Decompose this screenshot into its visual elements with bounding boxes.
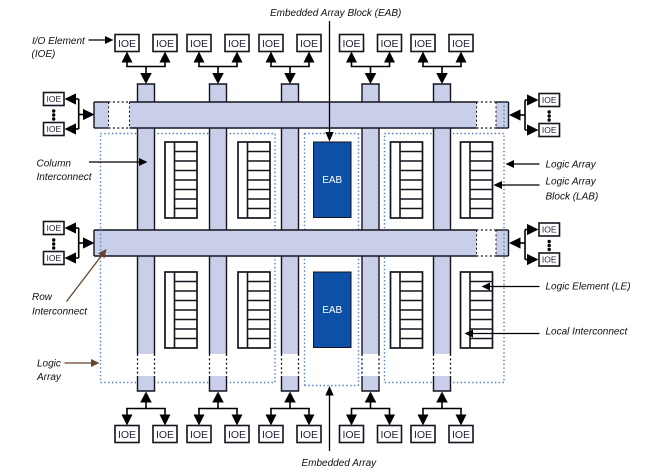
- svg-text:IOE: IOE: [452, 38, 470, 50]
- svg-text:IOE: IOE: [300, 429, 318, 441]
- svg-text:Local Interconnect: Local Interconnect: [546, 327, 629, 338]
- svg-text:IOE: IOE: [542, 225, 557, 235]
- svg-text:Interconnect: Interconnect: [32, 307, 88, 318]
- svg-text:IOE: IOE: [542, 95, 557, 105]
- svg-text:IOE: IOE: [118, 38, 136, 50]
- svg-text:Embedded Array: Embedded Array: [302, 458, 378, 469]
- svg-text:IOE: IOE: [46, 253, 61, 263]
- svg-text:IOE: IOE: [262, 38, 280, 50]
- svg-text:IOE: IOE: [46, 94, 61, 104]
- svg-text:Block (LAB): Block (LAB): [546, 192, 599, 203]
- svg-text:Logic Array: Logic Array: [546, 177, 597, 188]
- svg-text:IOE: IOE: [380, 429, 398, 441]
- svg-text:IOE: IOE: [46, 124, 61, 134]
- svg-text:IOE: IOE: [542, 255, 557, 265]
- svg-text:EAB: EAB: [322, 175, 342, 186]
- svg-text:IOE: IOE: [262, 429, 280, 441]
- svg-text:(IOE): (IOE): [32, 49, 56, 60]
- svg-text:IOE: IOE: [414, 38, 432, 50]
- svg-text:Array: Array: [36, 372, 62, 383]
- svg-text:Logic: Logic: [37, 359, 61, 370]
- svg-text:Logic Array: Logic Array: [546, 160, 597, 171]
- svg-text:Interconnect: Interconnect: [37, 172, 93, 183]
- svg-text:IOE: IOE: [156, 429, 174, 441]
- svg-text:IOE: IOE: [118, 429, 136, 441]
- svg-text:EAB: EAB: [322, 305, 342, 316]
- svg-text:IOE: IOE: [46, 223, 61, 233]
- svg-text:IOE: IOE: [300, 38, 318, 50]
- svg-text:IOE: IOE: [228, 38, 246, 50]
- svg-text:IOE: IOE: [542, 125, 557, 135]
- svg-text:I/O Element: I/O Element: [32, 36, 86, 47]
- svg-text:IOE: IOE: [342, 429, 360, 441]
- svg-text:Column: Column: [37, 159, 72, 170]
- svg-text:IOE: IOE: [228, 429, 246, 441]
- svg-text:IOE: IOE: [452, 429, 470, 441]
- svg-text:Logic Element (LE): Logic Element (LE): [546, 282, 631, 293]
- svg-text:IOE: IOE: [156, 38, 174, 50]
- svg-text:IOE: IOE: [342, 38, 360, 50]
- svg-text:IOE: IOE: [190, 429, 208, 441]
- svg-text:IOE: IOE: [380, 38, 398, 50]
- svg-text:Row: Row: [32, 292, 53, 303]
- svg-text:IOE: IOE: [190, 38, 208, 50]
- svg-text:Embedded Array Block (EAB): Embedded Array Block (EAB): [270, 8, 401, 19]
- svg-text:IOE: IOE: [414, 429, 432, 441]
